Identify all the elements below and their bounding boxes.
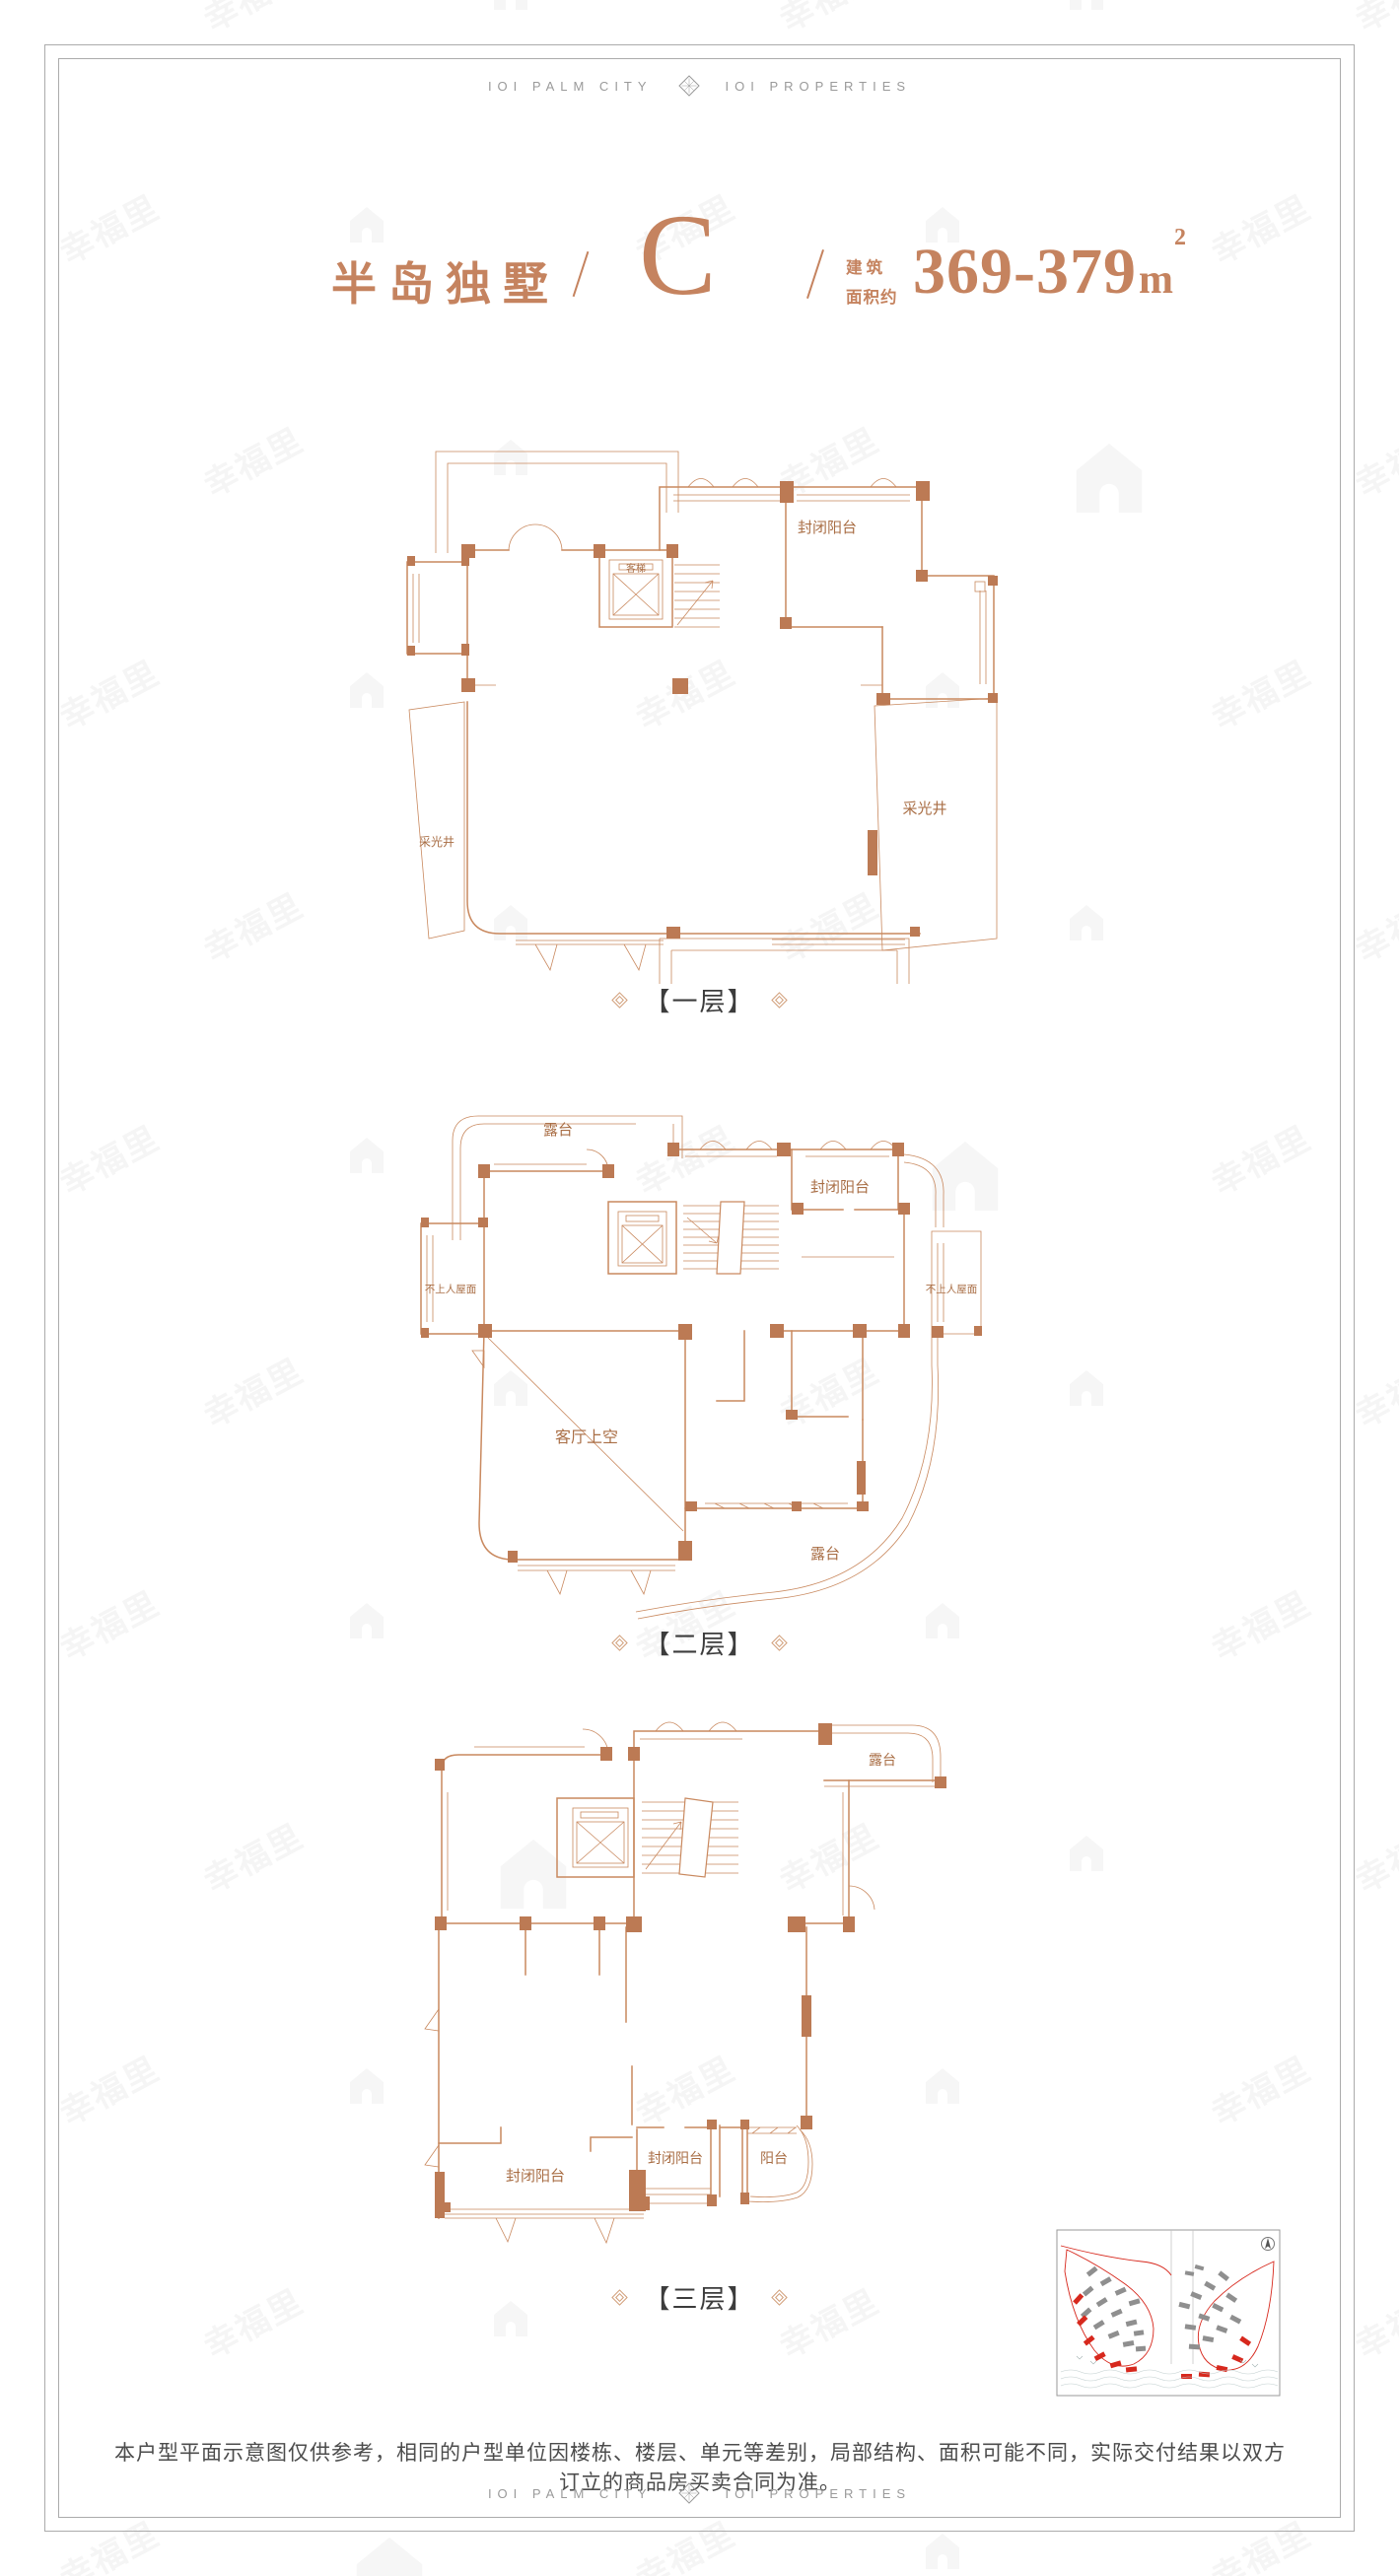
floor-caption-2: 【二层】: [0, 1625, 1399, 1661]
area-label-line1: 建 筑: [846, 254, 903, 278]
room-label-roof-right: 不上人屋面: [926, 1284, 978, 1295]
diamond-ornament-icon: [771, 2289, 788, 2306]
unit-type-letter: C: [639, 197, 717, 313]
brand-left-text: IOI PALM CITY: [488, 79, 653, 94]
watermark-house-icon: [919, 2530, 966, 2573]
watermark-house-icon: [1063, 0, 1110, 14]
floor-caption-text: 【三层】: [644, 2279, 754, 2316]
watermark-house-icon: [487, 0, 534, 14]
room-label-living-void: 客厅上空: [555, 1428, 618, 1446]
diamond-ornament-icon: [611, 1635, 628, 1651]
brand-right-text: IOI PROPERTIES: [726, 2486, 912, 2501]
diamond-ornament-icon: [611, 992, 628, 1009]
brand-diamond-icon: [678, 75, 700, 97]
room-label-terrace-top: 露台: [869, 1753, 896, 1769]
area-exponent: 2: [1174, 225, 1187, 250]
room-label-roof-left: 不上人屋面: [425, 1284, 477, 1295]
floor-caption-text: 【一层】: [644, 982, 754, 1018]
brand-footer: IOI PALM CITY IOI PROPERTIES: [0, 2482, 1399, 2504]
area-label: 建 筑 面积约: [846, 254, 903, 308]
diamond-ornament-icon: [771, 992, 788, 1009]
brand-header: IOI PALM CITY IOI PROPERTIES: [0, 75, 1399, 97]
watermark-house-icon: [0, 0, 4, 55]
diamond-ornament-icon: [771, 1635, 788, 1651]
area-label-line2: 面积约: [846, 284, 903, 308]
area-number: 369-379: [913, 236, 1137, 308]
brochure-page: 幸福里幸福里幸福里幸福里幸福里幸福里幸福里幸福里幸福里幸福里幸福里幸福里幸福里幸…: [0, 0, 1399, 2576]
product-name: 半岛独墅: [331, 248, 560, 313]
floor-plan-1-drawing: 封闭阳台 客梯 采光井 采光井: [387, 418, 1009, 990]
watermark-text: 幸福里: [194, 0, 311, 40]
room-label-lightwell-left: 采光井: [419, 835, 455, 849]
room-label-balcony-right: 阳台: [760, 2151, 788, 2167]
room-label-elevator: 客梯: [626, 562, 646, 575]
brand-left-text: IOI PALM CITY: [488, 2486, 653, 2501]
brand-right-text: IOI PROPERTIES: [726, 79, 912, 94]
brand-diamond-icon: [678, 2482, 700, 2504]
watermark-text: 幸福里: [1346, 0, 1399, 40]
room-label-enclosed-balcony: 封闭阳台: [798, 520, 857, 536]
floor-caption-text: 【二层】: [644, 1625, 754, 1661]
room-label-enclosed-balcony-left: 封闭阳台: [506, 2168, 565, 2185]
floor-plan-3-drawing: 露台 封闭阳台 封闭阳台 阳台: [397, 1674, 994, 2251]
area-unit: m: [1139, 257, 1174, 303]
room-label-enclosed-balcony: 封闭阳台: [810, 1179, 870, 1196]
site-location-map: [1037, 2206, 1284, 2399]
watermark-house-icon: [343, 2530, 436, 2576]
floor-caption-1: 【一层】: [0, 982, 1399, 1018]
room-label-terrace-top: 露台: [543, 1122, 573, 1139]
area-value: 369-379m2: [913, 235, 1187, 310]
watermark-text: 幸福里: [770, 0, 886, 40]
room-label-terrace-bottom: 露台: [810, 1546, 840, 1563]
diamond-ornament-icon: [611, 2289, 628, 2306]
room-label-enclosed-balcony-middle: 封闭阳台: [648, 2151, 703, 2167]
room-label-lightwell-right: 采光井: [902, 801, 946, 817]
floor-plan-2-drawing: 露台 封闭阳台 不上人屋面 不上人屋面 客厅上空 露台: [399, 1070, 991, 1622]
